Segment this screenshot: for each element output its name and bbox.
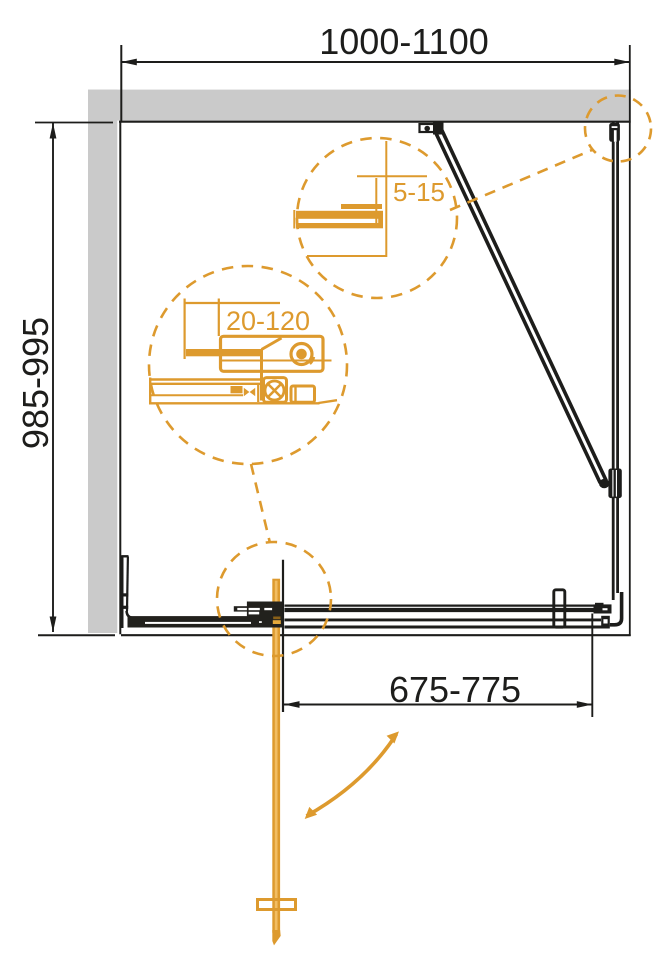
svg-text:20-120: 20-120 xyxy=(226,306,310,336)
svg-text:675-775: 675-775 xyxy=(389,669,521,710)
svg-text:985-995: 985-995 xyxy=(15,317,56,449)
svg-text:5-15: 5-15 xyxy=(393,177,445,207)
svg-text:1000-1100: 1000-1100 xyxy=(319,21,489,62)
